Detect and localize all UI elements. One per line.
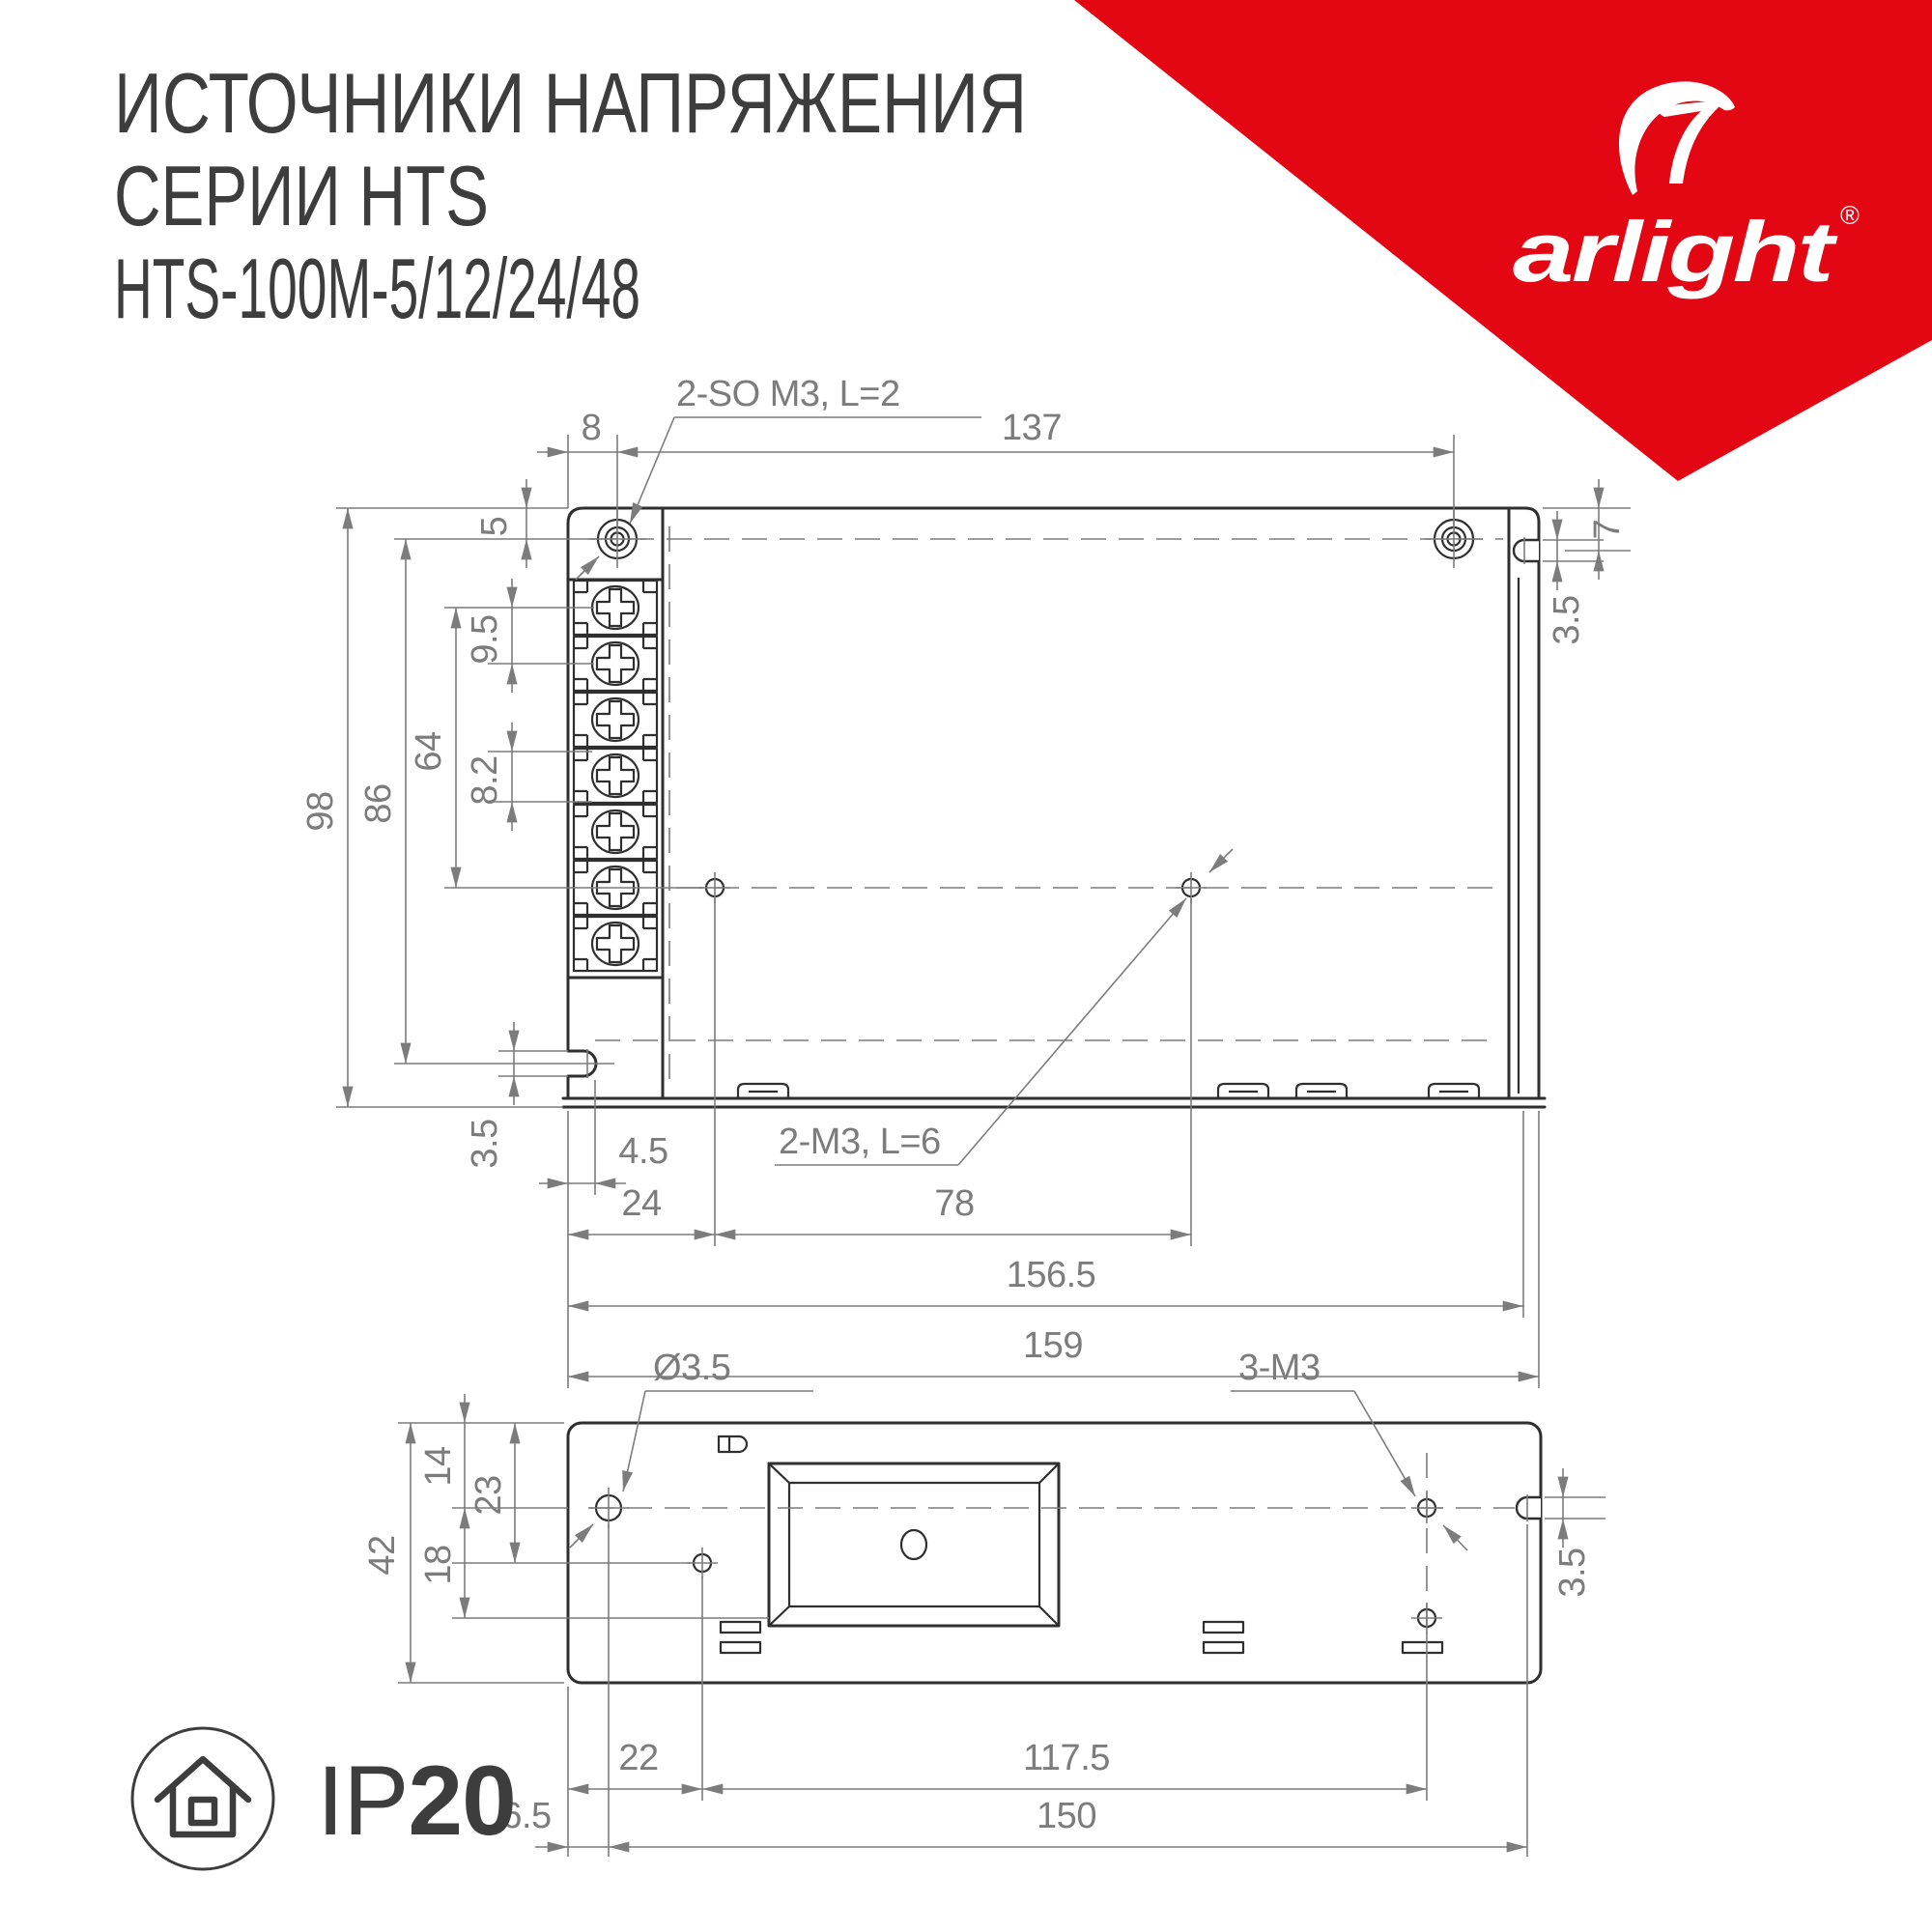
bottom-view-top-slot <box>719 1436 747 1452</box>
bottom-view-centerlines <box>589 1453 1515 1642</box>
page-title-line3: HTS-100M-5/12/24/48 <box>114 241 640 336</box>
svg-text:IP20: IP20 <box>317 1746 516 1856</box>
dim-150-label: 150 <box>1037 1796 1096 1836</box>
brand-wordmark: arlight <box>1513 204 1838 299</box>
bottom-view-raised-panel <box>769 1463 1059 1626</box>
ip-badge-value: 20 <box>408 1746 515 1856</box>
page-title-line2: СЕРИИ HTS <box>114 148 489 243</box>
top-view-centerlines <box>591 526 1503 1090</box>
label-hole-diameter: Ø3.5 <box>653 1348 730 1388</box>
ip-badge-prefix: IP <box>317 1746 408 1856</box>
dim-18-label: 18 <box>418 1545 459 1584</box>
bottom-hole-right-upper <box>1411 1492 1442 1523</box>
label-screws-top: 2-SO M3, L=2 <box>676 374 900 414</box>
dim-64-label: 64 <box>409 731 449 772</box>
registered-mark: ® <box>1840 201 1860 230</box>
ip-badge: IP20 <box>132 1728 516 1869</box>
top-view-leaders <box>576 417 1233 1165</box>
datasheet-page: ИСТОЧНИКИ НАПРЯЖЕНИЯ СЕРИИ HTS HTS-100M-… <box>0 0 1932 1932</box>
page-title-line1: ИСТОЧНИКИ НАПРЯЖЕНИЯ <box>114 55 1027 151</box>
dim-78-label: 78 <box>934 1183 974 1224</box>
top-view-case-outline <box>568 508 1539 1098</box>
brand-corner: arlight ® <box>1074 0 1932 481</box>
top-view-dimensions <box>348 452 1599 1377</box>
dim-23-label: 23 <box>469 1475 509 1515</box>
dim-3-5-left-label: 3.5 <box>465 1119 505 1168</box>
terminal-block <box>568 580 663 978</box>
top-view-base-plate <box>563 1098 1545 1107</box>
top-view: 2-SO M3, L=2 8 137 5 9.5 64 8.2 86 98 3.… <box>300 374 1631 1388</box>
dim-7-label: 7 <box>1587 520 1628 540</box>
bottom-view-right-notch <box>1517 1497 1541 1519</box>
dim-42-label: 42 <box>362 1535 403 1575</box>
page-header: ИСТОЧНИКИ НАПРЯЖЕНИЯ СЕРИИ HTS HTS-100M-… <box>114 55 1027 336</box>
label-screws-3m3: 3-M3 <box>1238 1348 1321 1388</box>
bottom-hole-right-lower <box>1411 1603 1442 1634</box>
dim-137-label: 137 <box>1002 408 1062 448</box>
dim-14-label: 14 <box>418 1446 459 1487</box>
bottom-view: Ø3.5 3-M3 14 23 42 18 3.5 22 117.5 6.5 1… <box>362 1348 1605 1857</box>
top-view-extension-lines <box>336 435 1631 1388</box>
dim-8-label: 8 <box>582 408 602 448</box>
bottom-view-leaders <box>570 1391 1467 1550</box>
dim-159-label: 159 <box>1023 1325 1083 1366</box>
dim-9-5-label: 9.5 <box>465 614 505 664</box>
dim-98-label: 98 <box>300 791 341 831</box>
bottom-hole-diameter-3-5 <box>588 1488 629 1528</box>
dim-22-label: 22 <box>618 1738 658 1778</box>
bottom-view-dimensions <box>411 1394 1563 1847</box>
dim-117-5-label: 117.5 <box>1023 1738 1110 1778</box>
dim-8-2-label: 8.2 <box>465 755 505 805</box>
dim-5-label: 5 <box>474 517 515 537</box>
house-icon <box>157 1759 248 1834</box>
dim-156-5-label: 156.5 <box>1007 1255 1096 1295</box>
panel-adjust-hole <box>901 1530 926 1559</box>
label-screws-bottom: 2-M3, L=6 <box>779 1122 941 1162</box>
top-view-right-notch <box>1514 540 1539 561</box>
bottom-view-extension-lines <box>398 1423 1605 1857</box>
dim-3-5-right-label: 3.5 <box>1547 595 1587 644</box>
dim-4-5-label: 4.5 <box>618 1131 668 1172</box>
technical-drawing: ИСТОЧНИКИ НАПРЯЖЕНИЯ СЕРИИ HTS HTS-100M-… <box>0 0 1932 1932</box>
dim-24-label: 24 <box>621 1183 662 1224</box>
dim-86-label: 86 <box>358 783 399 823</box>
dim-3-5-bottom-label: 3.5 <box>1552 1548 1593 1597</box>
